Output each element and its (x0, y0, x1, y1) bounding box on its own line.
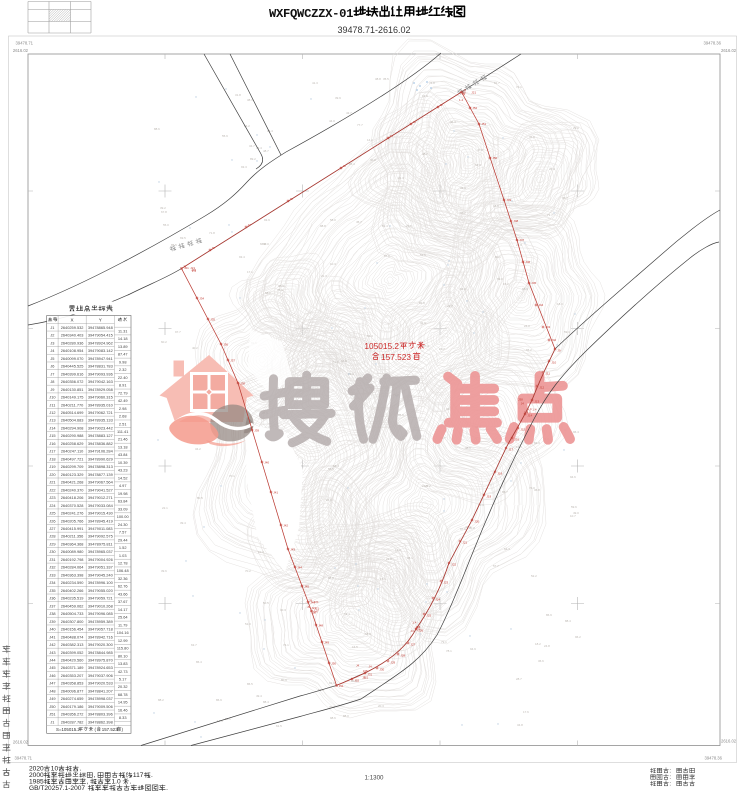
svg-text:J22: J22 (451, 563, 456, 567)
svg-text:67.8: 67.8 (161, 210, 167, 214)
svg-text:39478898.313: 39478898.313 (88, 464, 113, 469)
svg-text:39478998.037: 39478998.037 (88, 696, 113, 701)
svg-text:39478836.882: 39478836.882 (88, 441, 113, 446)
svg-text:10.39: 10.39 (118, 460, 128, 465)
svg-text:2640399.616: 2640399.616 (61, 371, 84, 376)
svg-text:2640382.313: 2640382.313 (61, 642, 84, 647)
svg-text:24.0: 24.0 (524, 324, 530, 328)
svg-text:2.32: 2.32 (119, 367, 127, 372)
svg-text:2640280.936: 2640280.936 (61, 340, 84, 345)
svg-text:21.3: 21.3 (398, 176, 404, 180)
svg-text:J3: J3 (413, 120, 417, 124)
svg-text:2640149.175: 2640149.175 (61, 395, 84, 400)
svg-text:J17: J17 (508, 448, 513, 452)
svg-text:39479015.430: 39479015.430 (88, 511, 114, 516)
svg-text:2616.02: 2616.02 (721, 738, 737, 743)
svg-text:X: X (71, 318, 74, 323)
svg-text:58.0: 58.0 (330, 218, 336, 222)
svg-text:39478975.870: 39478975.870 (88, 658, 114, 663)
svg-text:J38: J38 (240, 382, 245, 386)
svg-text:38.8: 38.8 (375, 77, 381, 81)
svg-text:J42: J42 (551, 338, 556, 342)
svg-text:2640488.074: 2640488.074 (61, 634, 85, 639)
svg-text:J4: J4 (369, 664, 373, 668)
svg-text:.: . (166, 785, 168, 791)
svg-text:14.18: 14.18 (118, 336, 128, 341)
svg-text:2640497.721: 2640497.721 (61, 456, 84, 461)
svg-text:2640211.356: 2640211.356 (61, 534, 83, 539)
svg-text:25.64: 25.64 (118, 615, 129, 620)
svg-text:62.4: 62.4 (382, 224, 388, 228)
svg-text:39478924.653: 39478924.653 (88, 665, 113, 670)
svg-text:J15: J15 (49, 433, 55, 438)
svg-text:J21: J21 (49, 480, 55, 485)
svg-text:J11: J11 (49, 402, 55, 407)
svg-text:68.3: 68.3 (522, 287, 528, 291)
svg-text:48.7: 48.7 (422, 152, 428, 156)
svg-text:39478883.127: 39478883.127 (88, 433, 113, 438)
svg-text:88.0: 88.0 (343, 714, 349, 718)
svg-text:20.3: 20.3 (378, 704, 384, 708)
svg-text:16.46: 16.46 (118, 707, 128, 712)
svg-text:J25: J25 (426, 614, 431, 618)
svg-text:2640399.052: 2640399.052 (61, 650, 84, 655)
svg-text:J24: J24 (435, 598, 440, 602)
svg-text:62.76: 62.76 (118, 584, 128, 589)
svg-text:J42: J42 (283, 524, 288, 528)
svg-text:J28: J28 (400, 654, 405, 658)
svg-text:52.3: 52.3 (475, 163, 481, 167)
svg-text:13.18: 13.18 (118, 445, 128, 450)
svg-text:2640307.800: 2640307.800 (61, 619, 85, 624)
svg-text:55.0: 55.0 (163, 223, 169, 227)
svg-text:2640504.733: 2640504.733 (61, 611, 84, 616)
svg-text:2640179.186: 2640179.186 (61, 704, 84, 709)
svg-text:J43: J43 (290, 548, 295, 552)
svg-text:63.84: 63.84 (118, 499, 129, 504)
svg-text:J39: J39 (254, 429, 259, 433)
svg-text:22.40: 22.40 (118, 375, 129, 380)
svg-text:2640290.988: 2640290.988 (61, 433, 84, 438)
svg-text:106.48: 106.48 (117, 568, 129, 573)
svg-text:2640089.980: 2640089.980 (61, 549, 85, 554)
svg-text:28.7: 28.7 (516, 677, 522, 681)
svg-text:30.0: 30.0 (469, 526, 475, 530)
svg-text:74.0: 74.0 (529, 486, 535, 490)
svg-text:J9: J9 (309, 599, 313, 603)
svg-text:2640420.560: 2640420.560 (61, 658, 85, 663)
svg-text:1.4: 1.4 (532, 408, 537, 412)
svg-text:73.7: 73.7 (547, 213, 553, 217)
svg-text:60.2: 60.2 (161, 340, 167, 344)
svg-text:J4: J4 (521, 402, 525, 406)
svg-text:J25: J25 (49, 511, 55, 516)
svg-text:39478929.058: 39478929.058 (88, 387, 113, 392)
svg-text:J14: J14 (527, 414, 532, 418)
svg-text:J34: J34 (49, 580, 56, 585)
svg-text:2640371.189: 2640371.189 (61, 665, 84, 670)
svg-text:2616.02: 2616.02 (13, 739, 29, 744)
svg-text:39479020.533: 39479020.533 (88, 681, 113, 686)
svg-text:J41: J41 (273, 491, 278, 495)
svg-text:14.2: 14.2 (367, 138, 373, 142)
svg-text:51.0: 51.0 (245, 622, 251, 626)
svg-text:13.89: 13.89 (118, 344, 128, 349)
svg-text:39478945.419: 39478945.419 (88, 518, 113, 523)
svg-text:J14: J14 (49, 426, 56, 431)
svg-text:39.4: 39.4 (180, 521, 186, 525)
svg-text:J31: J31 (49, 557, 55, 562)
svg-text:71.8: 71.8 (209, 231, 215, 235)
svg-text:2640241.276: 2640241.276 (61, 511, 84, 516)
svg-text:39478935.010: 39478935.010 (88, 402, 114, 407)
svg-text:J50: J50 (492, 156, 497, 160)
svg-text:31.8: 31.8 (235, 93, 241, 97)
svg-text:J21: J21 (184, 266, 189, 270)
svg-text:39.9: 39.9 (335, 96, 341, 100)
svg-text:15.2: 15.2 (503, 282, 509, 286)
svg-text:39479020.300: 39479020.300 (88, 642, 114, 647)
svg-text:J11: J11 (545, 372, 550, 376)
svg-text:J24: J24 (49, 503, 56, 508)
svg-text:J21: J21 (314, 600, 319, 604)
svg-text:94.9: 94.9 (470, 647, 476, 651)
svg-text:39479060.315: 39479060.315 (88, 395, 113, 400)
svg-text:J7: J7 (50, 371, 54, 376)
svg-text:J3: J3 (50, 340, 54, 345)
svg-text:J50: J50 (331, 662, 336, 666)
svg-text:39478965.037: 39478965.037 (88, 549, 113, 554)
svg-text:74.1: 74.1 (516, 85, 522, 89)
svg-text:39478.71: 39478.71 (16, 40, 34, 45)
svg-text:39479093.936: 39479093.936 (88, 371, 113, 376)
svg-text:77.7: 77.7 (357, 123, 363, 127)
svg-text:48.1: 48.1 (465, 446, 471, 450)
svg-text:32.36: 32.36 (118, 576, 128, 581)
svg-text:2640353.207: 2640353.207 (61, 673, 84, 678)
svg-text:J13: J13 (49, 418, 55, 423)
svg-text:39478831.783: 39478831.783 (88, 364, 113, 369)
svg-text:47.6: 47.6 (529, 135, 535, 139)
svg-text:J38: J38 (461, 91, 466, 95)
svg-text:2640096.877: 2640096.877 (61, 688, 84, 693)
svg-text:J7: J7 (248, 223, 252, 227)
svg-text:12.99: 12.99 (118, 638, 128, 643)
svg-text:39478.71-2616.02: 39478.71-2616.02 (337, 25, 410, 35)
svg-text:J1: J1 (50, 719, 54, 724)
svg-text:2640415.991: 2640415.991 (61, 526, 84, 531)
svg-text:34.7: 34.7 (249, 144, 255, 148)
svg-text:39.6: 39.6 (161, 569, 167, 573)
svg-text:23.8: 23.8 (386, 557, 392, 561)
svg-text:2640099.070: 2640099.070 (61, 356, 85, 361)
svg-text:J43: J43 (545, 325, 550, 329)
svg-text:43.84: 43.84 (118, 452, 129, 457)
svg-text:39.2: 39.2 (160, 206, 166, 210)
svg-text:39479037.906: 39479037.906 (88, 673, 113, 678)
svg-text:37.7: 37.7 (460, 211, 466, 215)
svg-text:21.46: 21.46 (118, 437, 128, 442)
svg-text:2616.02: 2616.02 (13, 48, 29, 53)
svg-text:20.3: 20.3 (549, 167, 555, 171)
svg-text:98.8: 98.8 (320, 224, 326, 228)
svg-text:93.9: 93.9 (264, 218, 270, 222)
svg-text:2640504.683: 2640504.683 (61, 418, 84, 423)
svg-text:69.5: 69.5 (180, 236, 186, 240)
svg-text:42.9: 42.9 (420, 321, 426, 325)
svg-text:J2: J2 (440, 103, 444, 107)
svg-text:2640358.853: 2640358.853 (61, 681, 84, 686)
svg-text:39479004.926: 39479004.926 (88, 557, 113, 562)
svg-text:39478935.133: 39478935.133 (88, 418, 113, 423)
svg-text:2.68: 2.68 (119, 414, 127, 419)
svg-text:2640363.398: 2640363.398 (61, 572, 84, 577)
svg-text:39479041.527: 39479041.527 (88, 487, 113, 492)
svg-text:2640364.368: 2640364.368 (61, 542, 84, 547)
svg-text:23.8: 23.8 (447, 304, 453, 308)
svg-text:1.52: 1.52 (119, 545, 127, 550)
svg-text:J40: J40 (49, 627, 56, 632)
svg-text:85.9: 85.9 (398, 413, 404, 417)
svg-text:J39: J39 (49, 619, 55, 624)
svg-text:15.1: 15.1 (380, 577, 386, 581)
svg-text:157.523: 157.523 (381, 352, 411, 362)
svg-text:J43: J43 (49, 650, 55, 655)
svg-text:2640108.954: 2640108.954 (61, 348, 85, 353)
svg-text:39479055.020: 39479055.020 (88, 588, 114, 593)
svg-text:14.52: 14.52 (118, 475, 128, 480)
svg-text:39478996.100: 39478996.100 (88, 580, 114, 585)
svg-text:2640356.272: 2640356.272 (61, 712, 84, 717)
svg-text:49.4: 49.4 (256, 694, 262, 698)
svg-text:J30: J30 (379, 668, 384, 672)
svg-text:J12: J12 (49, 410, 55, 415)
svg-text:J6: J6 (50, 364, 54, 369)
svg-text:39479042.163: 39479042.163 (88, 379, 113, 384)
svg-text:65.2: 65.2 (526, 348, 532, 352)
svg-text:J22: J22 (49, 487, 55, 492)
svg-text:2640258.629: 2640258.629 (61, 441, 84, 446)
svg-text:J51: J51 (339, 684, 344, 688)
svg-text:7.57: 7.57 (119, 530, 127, 535)
svg-text:80.1: 80.1 (495, 255, 501, 259)
svg-text:2640247.110: 2640247.110 (61, 449, 84, 454)
svg-text:61.3: 61.3 (367, 334, 373, 338)
svg-text:39478959.389: 39478959.389 (88, 619, 113, 624)
svg-text:39479106.284: 39479106.284 (88, 449, 114, 454)
svg-text:J5: J5 (50, 356, 54, 361)
svg-text:80.9: 80.9 (281, 678, 287, 682)
svg-text:2640418.206: 2640418.206 (61, 495, 84, 500)
svg-text:36.8: 36.8 (534, 488, 540, 492)
svg-text:43.23: 43.23 (118, 468, 128, 473)
svg-text:J23: J23 (443, 581, 448, 585)
svg-text:70.1: 70.1 (229, 474, 235, 478)
svg-text:J4: J4 (390, 134, 394, 138)
svg-text:J32: J32 (354, 679, 359, 683)
svg-text:39479010.268: 39479010.268 (88, 603, 113, 608)
svg-text:58.6: 58.6 (328, 576, 334, 580)
svg-text:39479009.506: 39479009.506 (88, 704, 113, 709)
svg-text:10.2: 10.2 (258, 550, 264, 554)
svg-text:J16: J16 (514, 438, 519, 442)
svg-text:93.3: 93.3 (241, 165, 247, 169)
svg-text:93.4: 93.4 (239, 255, 245, 259)
svg-text:14.95: 14.95 (118, 700, 128, 705)
svg-text:J45: J45 (531, 281, 536, 285)
svg-text:J30: J30 (49, 549, 56, 554)
svg-text:J29: J29 (49, 542, 55, 547)
svg-text:S=105015.2: S=105015.2 (56, 727, 80, 732)
svg-text:39479096.085: 39479096.085 (88, 611, 113, 616)
svg-text:J45: J45 (49, 665, 55, 670)
svg-text:84.3: 84.3 (534, 441, 540, 445)
svg-text:39479062.721: 39479062.721 (88, 410, 113, 415)
svg-text:39479057.718: 39479057.718 (88, 627, 113, 632)
svg-text:2640192.798: 2640192.798 (61, 557, 84, 562)
svg-text:18.2: 18.2 (535, 642, 541, 646)
svg-text:1.4: 1.4 (524, 411, 529, 415)
svg-text:68.3: 68.3 (333, 464, 339, 468)
svg-text:46.3: 46.3 (278, 284, 284, 288)
svg-text:J44: J44 (538, 303, 543, 307)
svg-text:1:1300: 1:1300 (365, 775, 384, 782)
svg-text:47.8: 47.8 (477, 148, 483, 152)
svg-text:20.32: 20.32 (118, 684, 128, 689)
svg-text:J9: J9 (557, 349, 561, 353)
svg-text:30.0: 30.0 (370, 158, 376, 162)
svg-text:J21: J21 (471, 91, 476, 95)
svg-text:J9: J9 (50, 387, 54, 392)
svg-text:79.1: 79.1 (441, 640, 447, 644)
svg-text:J1: J1 (50, 325, 54, 330)
svg-text:2640274.659: 2640274.659 (61, 696, 84, 701)
svg-text:7.2: 7.2 (416, 626, 421, 630)
svg-text:2640156.454: 2640156.454 (61, 627, 85, 632)
svg-text:J6: J6 (290, 197, 294, 201)
svg-text:39478990.629: 39478990.629 (88, 456, 113, 461)
svg-text:34.8: 34.8 (517, 723, 523, 727)
svg-text:8.33: 8.33 (119, 715, 127, 720)
svg-text:2640445.525: 2640445.525 (61, 364, 84, 369)
svg-text:J51: J51 (49, 712, 55, 717)
svg-text:39478942.716: 39478942.716 (88, 634, 113, 639)
svg-text:J4: J4 (411, 629, 415, 633)
svg-text:2640402.266: 2640402.266 (61, 588, 84, 593)
svg-text:10: 10 (51, 766, 59, 773)
svg-text:19.98: 19.98 (118, 491, 128, 496)
svg-text:J40: J40 (264, 461, 269, 465)
svg-text:43.8: 43.8 (460, 186, 466, 190)
svg-text:57.7: 57.7 (493, 564, 499, 568)
svg-text:98.6: 98.6 (330, 716, 336, 720)
svg-text:86.5: 86.5 (247, 682, 253, 686)
svg-text:33.09: 33.09 (118, 506, 128, 511)
svg-text:39479033.084: 39479033.084 (88, 503, 114, 508)
svg-text:64.4: 64.4 (504, 547, 510, 551)
svg-text:39478924.962: 39478924.962 (88, 340, 113, 345)
svg-text:39479083.142: 39479083.142 (88, 348, 113, 353)
svg-text:29.5: 29.5 (406, 224, 412, 228)
svg-text:J10: J10 (551, 361, 556, 365)
svg-text:18.6: 18.6 (493, 204, 499, 208)
svg-text:,: , (86, 778, 88, 785)
svg-text:39478.71: 39478.71 (15, 756, 33, 761)
svg-text:J38: J38 (49, 611, 55, 616)
svg-text:48.7: 48.7 (263, 149, 269, 153)
svg-text:76.9: 76.9 (277, 288, 283, 292)
svg-text:18.3: 18.3 (557, 302, 563, 306)
svg-text:2640294.908: 2640294.908 (61, 426, 84, 431)
svg-text:1.4: 1.4 (459, 98, 464, 102)
svg-text:39478865.948: 39478865.948 (88, 325, 113, 330)
svg-text:J16: J16 (49, 441, 55, 446)
svg-text:59.1: 59.1 (564, 330, 570, 334)
svg-text:78.1: 78.1 (446, 649, 452, 653)
svg-text:J20: J20 (49, 472, 56, 477)
svg-text:2640123.329: 2640123.329 (61, 472, 84, 477)
svg-text:17.1: 17.1 (247, 270, 253, 274)
svg-text:39479059.721: 39479059.721 (88, 596, 113, 601)
svg-text:81.7: 81.7 (494, 81, 500, 85)
svg-text:1.4: 1.4 (192, 269, 197, 273)
svg-text:23.6: 23.6 (422, 484, 428, 488)
svg-text:97.7: 97.7 (175, 330, 181, 334)
svg-text:J35: J35 (49, 588, 55, 593)
svg-text:2640421.268: 2640421.268 (61, 480, 84, 485)
svg-text:42.73: 42.73 (118, 669, 128, 674)
svg-text:94.6: 94.6 (570, 475, 576, 479)
svg-text:J38: J38 (311, 611, 316, 615)
svg-text:58.8: 58.8 (365, 632, 371, 636)
svg-text:12.78: 12.78 (118, 561, 128, 566)
svg-text:8.91: 8.91 (119, 383, 127, 388)
svg-text:39478841.207: 39478841.207 (88, 688, 113, 693)
svg-text:105015.2: 105015.2 (364, 341, 399, 351)
svg-text:J5: J5 (343, 164, 347, 168)
svg-text:,: , (94, 772, 96, 779)
svg-text:2616.02: 2616.02 (721, 48, 737, 53)
svg-text:J37: J37 (49, 603, 55, 608)
svg-text:J21: J21 (314, 607, 319, 611)
svg-text:J46: J46 (525, 260, 530, 264)
svg-text:64.0: 64.0 (460, 287, 466, 291)
svg-text:53.5: 53.5 (420, 253, 426, 257)
svg-text:5.17: 5.17 (119, 677, 127, 682)
svg-text:157.523: 157.523 (102, 727, 118, 732)
svg-text:36.6: 36.6 (538, 659, 544, 663)
svg-text:42.49: 42.49 (118, 398, 128, 403)
svg-text:J10: J10 (49, 395, 56, 400)
svg-text:89.2: 89.2 (250, 157, 256, 161)
svg-text:45.7: 45.7 (356, 220, 362, 224)
svg-text:87.47: 87.47 (118, 352, 128, 357)
svg-text:2640130.851: 2640130.851 (61, 387, 84, 392)
svg-text:41.3: 41.3 (312, 81, 318, 85)
svg-text:39479054.415: 39479054.415 (88, 333, 113, 338)
svg-text:2640340.403: 2640340.403 (61, 333, 84, 338)
svg-text:50.5: 50.5 (263, 601, 269, 605)
svg-text:J49: J49 (324, 641, 329, 645)
svg-text:J18: J18 (497, 472, 502, 476)
svg-text:44.0: 44.0 (329, 119, 335, 123)
svg-text:J49: J49 (49, 696, 55, 701)
svg-text:J48: J48 (49, 688, 55, 693)
svg-text:J20: J20 (474, 520, 479, 524)
svg-text:J2: J2 (50, 333, 54, 338)
svg-text:82.8: 82.8 (419, 301, 425, 305)
svg-text:11.31: 11.31 (118, 328, 127, 333)
